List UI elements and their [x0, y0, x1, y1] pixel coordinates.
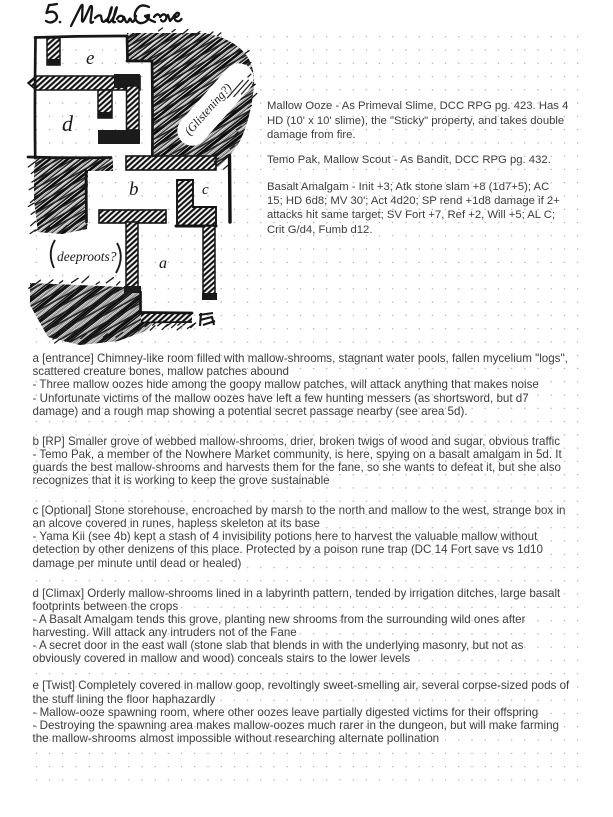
svg-text:b: b [129, 179, 139, 200]
svg-text:c: c [202, 182, 209, 198]
svg-text:a: a [159, 255, 167, 272]
svg-text:e: e [86, 48, 94, 69]
svg-text:d: d [62, 111, 74, 136]
svg-text:deeproots?: deeproots? [57, 249, 117, 264]
